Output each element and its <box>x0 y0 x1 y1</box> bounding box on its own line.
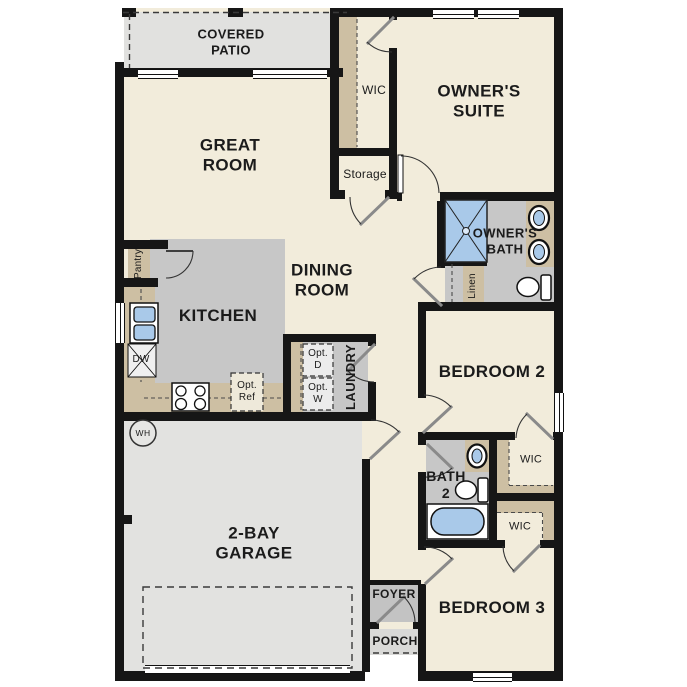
dishwasher-label: DW <box>132 354 149 366</box>
wall-laundry-left <box>283 334 291 420</box>
wall-wic-left <box>330 8 339 198</box>
garage-label: 2-BAY GARAGE <box>215 524 292 565</box>
wall-suite-bottom <box>440 192 563 201</box>
kitchen-counter-bottom <box>124 383 285 412</box>
floor-plan: COVERED PATIO GREAT ROOM WIC Storage OWN… <box>0 0 687 687</box>
greatroom-window-2 <box>253 69 327 79</box>
wall-foyer-porch-left <box>362 622 379 629</box>
wall-bedroom2-bath2-left <box>418 432 515 440</box>
pantry-label: Pantry <box>133 249 145 279</box>
wall-foyer-header <box>362 580 421 585</box>
owners-suite-window-1 <box>433 9 474 19</box>
owners-wic-label: WIC <box>362 83 386 97</box>
storage-label: Storage <box>343 167 386 181</box>
wall-right-exterior <box>554 8 563 681</box>
foyer-label: FOYER <box>372 587 415 601</box>
porch-label: PORCH <box>372 634 417 648</box>
wall-wic-divider <box>489 493 563 501</box>
great-room-label: GREAT ROOM <box>200 136 260 177</box>
laundry-counter <box>291 342 303 412</box>
wall-kitchen-garage <box>115 412 376 421</box>
wall-suite-bottom-stub <box>397 192 402 201</box>
bedroom2-window <box>554 393 564 432</box>
porch-open-gap <box>365 655 418 681</box>
covered-patio-label: COVERED PATIO <box>197 26 264 57</box>
bath2-vanity <box>465 440 489 472</box>
garage-door <box>145 665 350 674</box>
dining-room-label: DINING ROOM <box>291 261 353 302</box>
wall-pantry-bottom <box>124 278 158 287</box>
greatroom-window-1 <box>138 69 178 79</box>
wall-wic-right-stub <box>389 8 397 20</box>
bedroom2-label: BEDROOM 2 <box>439 362 546 382</box>
wall-linen-top <box>443 258 487 266</box>
patio-post-middle <box>228 8 243 17</box>
wall-hall-bedrooms-1 <box>418 311 426 398</box>
wall-bedroom2-bath2-right <box>553 432 563 440</box>
wall-pantry-top <box>124 240 168 249</box>
wall-hall-bedrooms-4 <box>418 584 426 681</box>
owners-bath-label: OWNER'S BATH <box>473 225 537 256</box>
patio-post-left <box>122 8 136 17</box>
owners-suite-window-2 <box>478 9 519 19</box>
water-heater-label: WH <box>136 428 151 438</box>
wall-left-exterior <box>115 62 124 672</box>
wall-laundry-right-top <box>368 334 376 346</box>
linen-label: Linen <box>467 273 479 298</box>
wall-storage-bottom-left <box>330 190 345 199</box>
wall-bedroom3-top-left <box>418 540 505 548</box>
opt-fridge-label: Opt. Ref <box>237 380 257 404</box>
opt-washer-label: Opt. W <box>308 382 328 406</box>
wall-wic-right <box>389 48 397 198</box>
wic-bedroom3-label: WIC <box>509 520 531 533</box>
wall-wic-storage-divider <box>330 148 397 156</box>
bedroom3-window <box>473 672 512 682</box>
wall-hall-bedrooms-3 <box>418 472 426 550</box>
wic3-shelf-top <box>497 501 554 513</box>
kitchen-window <box>115 303 125 343</box>
wall-bedroom2-top <box>418 302 563 311</box>
wall-laundry-top <box>283 334 376 342</box>
opt-dryer-label: Opt. D <box>308 348 328 372</box>
bath2-label: BATH 2 <box>426 468 465 502</box>
owners-suite-label: OWNER'S SUITE <box>437 82 520 123</box>
wall-bedroom3-top-right <box>540 540 563 548</box>
owners-wic-shelf <box>338 17 357 148</box>
kitchen-label: KITCHEN <box>179 306 257 326</box>
wall-garage-right <box>362 459 370 672</box>
wall-garage-jog <box>115 515 132 524</box>
laundry-label: LAUNDRY <box>343 344 359 410</box>
wic-bedroom2-label: WIC <box>520 453 542 466</box>
bedroom3-label: BEDROOM 3 <box>439 598 546 618</box>
wall-foyer-porch-right <box>413 622 421 629</box>
wall-storage-bottom-right <box>385 190 397 199</box>
